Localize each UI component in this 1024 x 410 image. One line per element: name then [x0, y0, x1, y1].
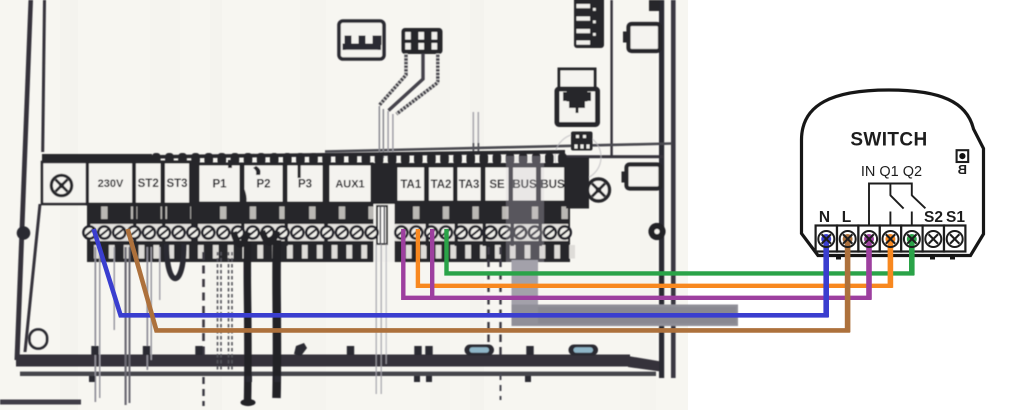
svg-text:P2: P2: [256, 179, 270, 191]
svg-text:ST3: ST3: [166, 178, 187, 190]
svg-text:S1: S1: [946, 209, 965, 226]
svg-text:SWITCH: SWITCH: [850, 130, 927, 151]
svg-text:TA1: TA1: [400, 179, 421, 191]
svg-text:IN Q1 Q2: IN Q1 Q2: [861, 164, 922, 180]
svg-text:P1: P1: [212, 179, 227, 191]
svg-text:BUS: BUS: [540, 179, 565, 191]
svg-text:P3: P3: [298, 179, 312, 191]
svg-text:AUX1: AUX1: [335, 179, 364, 191]
svg-text:230V: 230V: [98, 178, 124, 190]
svg-text:ST2: ST2: [138, 178, 159, 190]
svg-text:TA3: TA3: [459, 179, 480, 191]
svg-text:SE: SE: [489, 179, 505, 191]
svg-text:S2: S2: [924, 209, 943, 226]
svg-text:B: B: [958, 162, 967, 177]
svg-text:TA2: TA2: [431, 179, 452, 191]
svg-text:L: L: [842, 209, 851, 226]
svg-text:N: N: [819, 209, 830, 226]
